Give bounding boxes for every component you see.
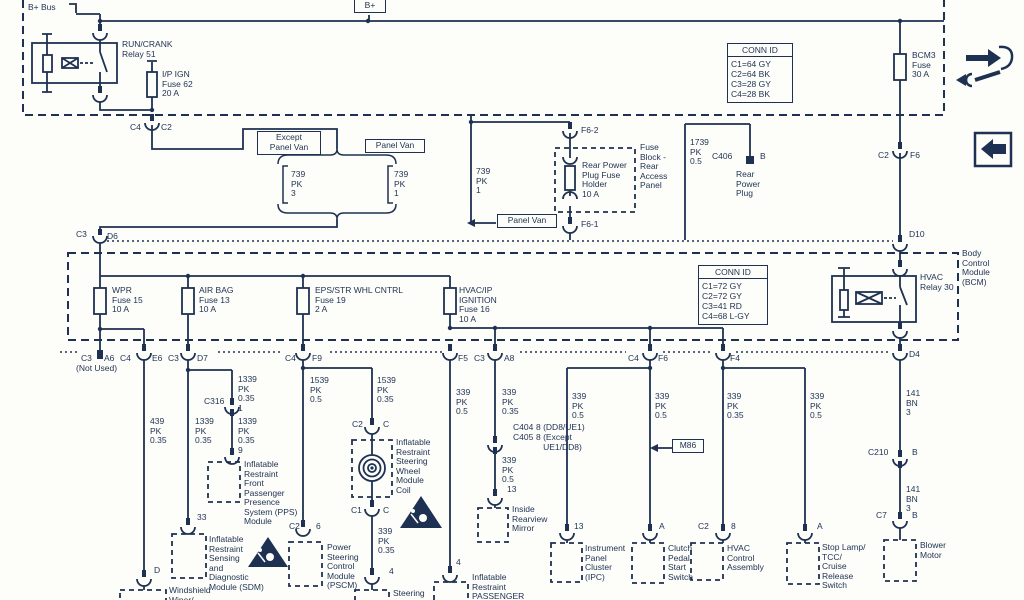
panel-van-tag-b: Panel Van — [497, 214, 557, 228]
not-used-terminal — [97, 350, 103, 359]
pin-d6: D6 — [107, 232, 118, 242]
wire-339pk035-hvac: 339 PK 0.35 — [727, 392, 744, 421]
wire-339pk05-stop: 339 PK 0.5 — [810, 392, 824, 421]
sdm-module-box — [172, 534, 206, 578]
wiper-module-box — [120, 590, 166, 600]
pin-c3c: C3 — [474, 354, 485, 364]
conn-id-row: C4=68 L-GY — [699, 311, 767, 321]
wire-141bn-1: 141 BN 3 — [906, 389, 920, 418]
wire-339pk05-mir: 339 PK 0.5 — [502, 456, 516, 485]
passenger-module-label: Inflatable Restraint PASSENGER — [472, 573, 524, 600]
pin-a-stop: A — [817, 522, 823, 532]
bcm-name-label: Body Control Module (BCM) — [962, 249, 990, 287]
pin-c2-pscm: C2 — [289, 522, 300, 532]
pin-c3b: C3 — [168, 354, 179, 364]
wire-339pk035-mir: 339 PK 0.35 — [502, 388, 519, 417]
pps-module-box — [208, 462, 240, 502]
pin-a8: A8 — [504, 354, 514, 364]
conn-id-row: C4=28 BK — [728, 89, 792, 99]
pps-module-label: Inflatable Restraint Front Passenger Pre… — [244, 460, 297, 527]
rear-plug-label: Rear Power Plug — [736, 170, 760, 199]
service-icons — [956, 47, 1012, 166]
conn-id-row: C2=72 GY — [699, 291, 767, 301]
pin-c4a: C4 — [120, 354, 131, 364]
wire-339pk05-clutch: 339 PK 0.5 — [655, 392, 669, 421]
wire-339pk05-ipc: 339 PK 0.5 — [572, 392, 586, 421]
wire-1739pk: 1739 PK 0.5 — [690, 138, 709, 167]
pin-13-ipc: 13 — [574, 522, 583, 532]
except-panel-van-tag: Except Panel Van — [257, 131, 321, 155]
conn-id-table-bcm: CONN ID C1=72 GY C2=72 GY C3=41 RD C4=68… — [698, 265, 768, 325]
pin-8-hvac: 8 — [731, 522, 736, 532]
pin-c2: C2 — [161, 123, 172, 133]
pin-c1-coil: C1 — [351, 506, 362, 516]
relay30-label: HVAC Relay 30 — [920, 273, 954, 292]
coil-module-label: Inflatable Restraint Steering Wheel Modu… — [396, 438, 431, 495]
conn-id-table-ip: CONN ID C1=64 GY C2=64 BK C3=28 GY C4=28… — [727, 43, 793, 103]
relay51-label: RUN/CRANK Relay 51 — [122, 40, 173, 59]
ipc-module-label: Instrument Panel Cluster (IPC) — [585, 544, 625, 582]
passenger-module-box — [434, 582, 468, 600]
pin-8-except: 8 (Except UE1/DD8) — [536, 433, 582, 452]
stop-module-box — [787, 543, 819, 584]
sdm-module-label: Inflatable Restraint Sensing and Diagnos… — [209, 535, 264, 592]
pin-c-coil-bot: C — [383, 506, 389, 516]
clutch-module-box — [632, 543, 664, 583]
wire-1539pk05: 1539 PK 0.5 — [310, 376, 329, 405]
rear-plug-terminal — [746, 156, 754, 164]
steering-module-label: Steering — [393, 589, 425, 599]
pin-a-clutch: A — [659, 522, 665, 532]
fuse15-label: WPR Fuse 15 10 A — [112, 286, 143, 315]
bcm3-fuse-label: BCM3 Fuse 30 A — [912, 51, 936, 80]
fuse-block-label: Fuse Block - Rear Access Panel — [640, 143, 667, 191]
pin-c2-hvac: C2 — [698, 522, 709, 532]
pin-b2: B — [912, 511, 918, 521]
pin-f6-1: F6-1 — [581, 220, 598, 230]
wire-1539pk035: 1539 PK 0.35 — [377, 376, 396, 405]
pin-33: 33 — [197, 513, 206, 523]
conn-c406: C406 — [712, 152, 732, 162]
pin-e6: E6 — [152, 354, 162, 364]
pin-c2-coil: C2 — [352, 420, 363, 430]
wire-339pk05-pass: 339 PK 0.5 — [456, 388, 470, 417]
blower-module-label: Blower Motor — [920, 541, 946, 560]
pin-c4b: C4 — [285, 354, 296, 364]
wire-439pk: 439 PK 0.35 — [150, 417, 167, 446]
pin-b1: B — [912, 448, 918, 458]
conn-c210: C210 — [868, 448, 888, 458]
wire-1339pk: 1339 PK 0.35 — [195, 417, 214, 446]
m86-tag: M86 — [672, 439, 704, 453]
conn-id-title: CONN ID — [699, 266, 767, 279]
conn-c7: C7 — [876, 511, 887, 521]
fuse13-label: AIR BAG Fuse 13 10 A — [199, 286, 233, 315]
conn-id-row: C1=64 GY — [728, 59, 792, 69]
wire-739pk3: 739 PK 3 — [291, 170, 305, 199]
back-arrow-icon — [975, 133, 1011, 166]
conn-id-row: C2=64 BK — [728, 69, 792, 79]
wiring-diagram: B+ Bus B+ RUN/CRANK Relay 51 I/P IGN Fus… — [0, 0, 1024, 600]
pin-c2-right: C2 — [878, 151, 889, 161]
pin-c4c: C4 — [628, 354, 639, 364]
pin-d7: D7 — [197, 354, 208, 364]
conn-c316: C316 — [204, 397, 224, 407]
pscm-module-label: Power Steering Control Module (PSCM) — [327, 543, 359, 591]
wire-739pk1-b: 739 PK 1 — [476, 167, 490, 196]
blower-module-box — [884, 540, 916, 581]
wire-1339pk-9: 1339 PK 0.35 9 — [238, 417, 257, 455]
data-link-wrench-icon — [956, 47, 1012, 86]
pin-4-steering: 4 — [389, 567, 394, 577]
bplus-bus-label: B+ Bus — [28, 3, 56, 13]
mirror-module-box — [478, 508, 508, 542]
pin-6-pscm: 6 — [316, 522, 321, 532]
pin-b: B — [760, 152, 766, 162]
bplus-tag: B+ — [354, 0, 386, 13]
pin-c4: C4 — [130, 123, 141, 133]
pin-d10: D10 — [909, 230, 925, 240]
stop-module-label: Stop Lamp/ TCC/ Cruise Release Switch — [822, 543, 865, 591]
pin-f6-right: F6 — [910, 151, 920, 161]
pin-f5: F5 — [458, 354, 468, 364]
pin-f6b: F6 — [658, 354, 668, 364]
wiper-module-label: Windshield Wiper/ — [169, 586, 211, 600]
fuse16-label: HVAC/IP IGNITION Fuse 16 10 A — [459, 286, 497, 324]
conn-id-row: C3=41 RD — [699, 301, 767, 311]
pin-c-coil-top: C — [383, 420, 389, 430]
pin-f9: F9 — [312, 354, 322, 364]
fuse19-label: EPS/STR WHL CNTRL Fuse 19 2 A — [315, 286, 403, 315]
wire-1339pk-1: 1339 PK 0.35 1 — [238, 375, 257, 413]
pin-4-pass: 4 — [456, 558, 461, 568]
fuse62-label: I/P IGN Fuse 62 20 A — [162, 70, 193, 99]
conn-c404-c405: C404 C405 — [513, 423, 533, 442]
steering-module-box — [355, 590, 389, 600]
pin-d4: D4 — [909, 350, 920, 360]
pin-d: D — [154, 566, 160, 576]
mirror-module-label: Inside Rearview Mirror — [512, 505, 547, 534]
pin-f6-2: F6-2 — [581, 126, 598, 136]
ipc-module-box — [551, 543, 582, 582]
rear-fuse-label: Rear Power Plug Fuse Holder 10 A — [582, 161, 627, 199]
m86-arrow-icon — [650, 444, 658, 452]
conn-id-title: CONN ID — [728, 44, 792, 57]
hvac-module-box — [691, 543, 723, 580]
wire-739pk1-a: 739 PK 1 — [394, 170, 408, 199]
clutch-module-label: Clutch Pedal Start Switch — [668, 544, 693, 582]
pin-c3-mid: C3 — [76, 230, 87, 240]
airbag-icon-coil — [400, 496, 442, 528]
panel-van-tag-a: Panel Van — [365, 139, 425, 153]
hvac-module-label: HVAC Control Assembly — [727, 544, 764, 573]
pin-f4: F4 — [730, 354, 740, 364]
conn-id-row: C3=28 GY — [728, 79, 792, 89]
conn-id-row: C1=72 GY — [699, 281, 767, 291]
wire-339pk035-coil: 339 PK 0.35 — [378, 527, 395, 556]
pscm-module-box — [289, 542, 322, 586]
pin-13-mirror: 13 — [507, 485, 516, 495]
pin-not-used: (Not Used) — [76, 364, 117, 374]
